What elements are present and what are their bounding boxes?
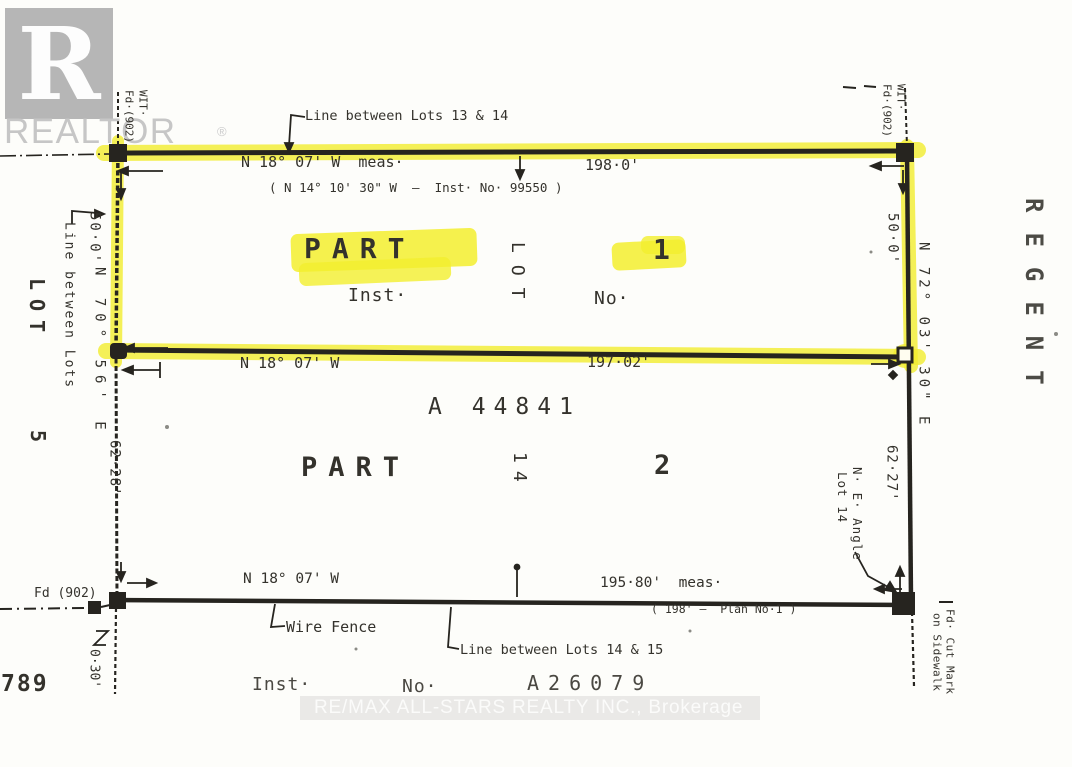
west-line-label: Line between Lots <box>62 222 76 389</box>
sidewalk-mark-line2: on Sidewalk <box>931 613 943 691</box>
monument-mid-right <box>898 348 912 362</box>
street-name-regent: REGENT <box>1021 198 1046 405</box>
west-lot-number: 5 <box>27 430 48 442</box>
realtor-logo-letter: R <box>17 14 100 114</box>
west-bearing: N 70° 56' E <box>92 267 107 437</box>
monument-top-right <box>896 143 914 162</box>
part2-lot-number: 2 <box>654 452 670 480</box>
west-monument-label: Fd (902) <box>34 587 97 601</box>
part2-word: PART <box>301 454 410 482</box>
north-distance: 198·0' <box>585 158 639 174</box>
part1-no-label: No· <box>594 290 630 309</box>
realtor-logo: R <box>5 8 113 119</box>
wire-fence-label: Wire Fence <box>286 620 376 636</box>
east-wit-label: WIT· <box>895 84 907 111</box>
east-seg2-distance: 62·27' <box>884 445 899 502</box>
sidewalk-mark-line1: Fd· Cut Mark <box>944 609 956 694</box>
west-wit-label: WIT· <box>137 90 149 117</box>
survey-monuments <box>88 143 915 615</box>
south-plan-note: ( 198' — Plan No·1 ) <box>651 603 796 615</box>
west-seg2-distance: 62·28' <box>107 440 122 497</box>
south-inst-number: A26079 <box>527 673 653 694</box>
street-number: 789 <box>1 672 49 696</box>
survey-plan-scan: R REALTOR ® REGENT 789 Line between Lots… <box>0 0 1072 767</box>
south-inst-label: Inst· <box>252 676 311 695</box>
north-line-label: Line between Lots 13 & 14 <box>305 109 508 123</box>
south-line-label: Line between Lots 14 & 15 <box>460 643 663 657</box>
part2-lot-word: 14 <box>509 452 528 490</box>
part1-word: PART <box>304 234 415 263</box>
south-no-label: No· <box>402 678 438 697</box>
part1-inst-label: Inst· <box>348 287 407 306</box>
part1-lot-word: LOT <box>507 242 526 311</box>
monument-mid-left <box>110 343 127 359</box>
brokerage-watermark-text: RE/MAX ALL-STARS REALTY INC., Brokerage <box>300 697 743 719</box>
realtor-wordmark: REALTOR <box>4 112 177 152</box>
west-wit-monument: Fd·(902) <box>123 90 135 143</box>
monument-bottom-left-2 <box>88 601 101 614</box>
part2-plan-number: A 44841 <box>428 395 581 419</box>
mid-bearing: N 18° 07' W <box>240 356 339 372</box>
north-bearing: N 18° 07' W meas· <box>241 155 404 171</box>
east-seg1-distance: 50·0' <box>885 213 900 265</box>
west-offset-distance: 0·30' <box>87 649 101 688</box>
registered-mark: ® <box>217 124 227 139</box>
dimension-arrows <box>117 156 907 597</box>
brokerage-watermark: RE/MAX ALL-STARS REALTY INC., Brokerage <box>300 696 760 720</box>
south-bearing: N 18° 07' W <box>243 572 339 587</box>
north-plan-note: ( N 14° 10' 30" W — Inst· No· 99550 ) <box>269 181 563 194</box>
east-wit-monument: Fd·(902) <box>881 84 893 137</box>
mid-distance: 197·02' <box>587 355 650 371</box>
break-symbol <box>94 631 108 645</box>
monument-bottom-left <box>109 592 126 609</box>
label-leaders <box>72 115 896 649</box>
ne-angle-label-line2: Lot 14 <box>836 472 849 523</box>
ne-angle-label-line1: N· E· Angle <box>851 467 864 561</box>
part1-lot-number: 1 <box>653 235 670 264</box>
east-bearing: N 72° 03' 30" E <box>916 242 931 428</box>
boundary-lines <box>0 86 953 694</box>
west-seg1-distance: 50·0' <box>87 212 102 264</box>
west-lot-word: LOT <box>26 278 47 341</box>
south-distance: 195·80' meas· <box>600 576 722 591</box>
monument-bottom-right <box>892 592 915 615</box>
